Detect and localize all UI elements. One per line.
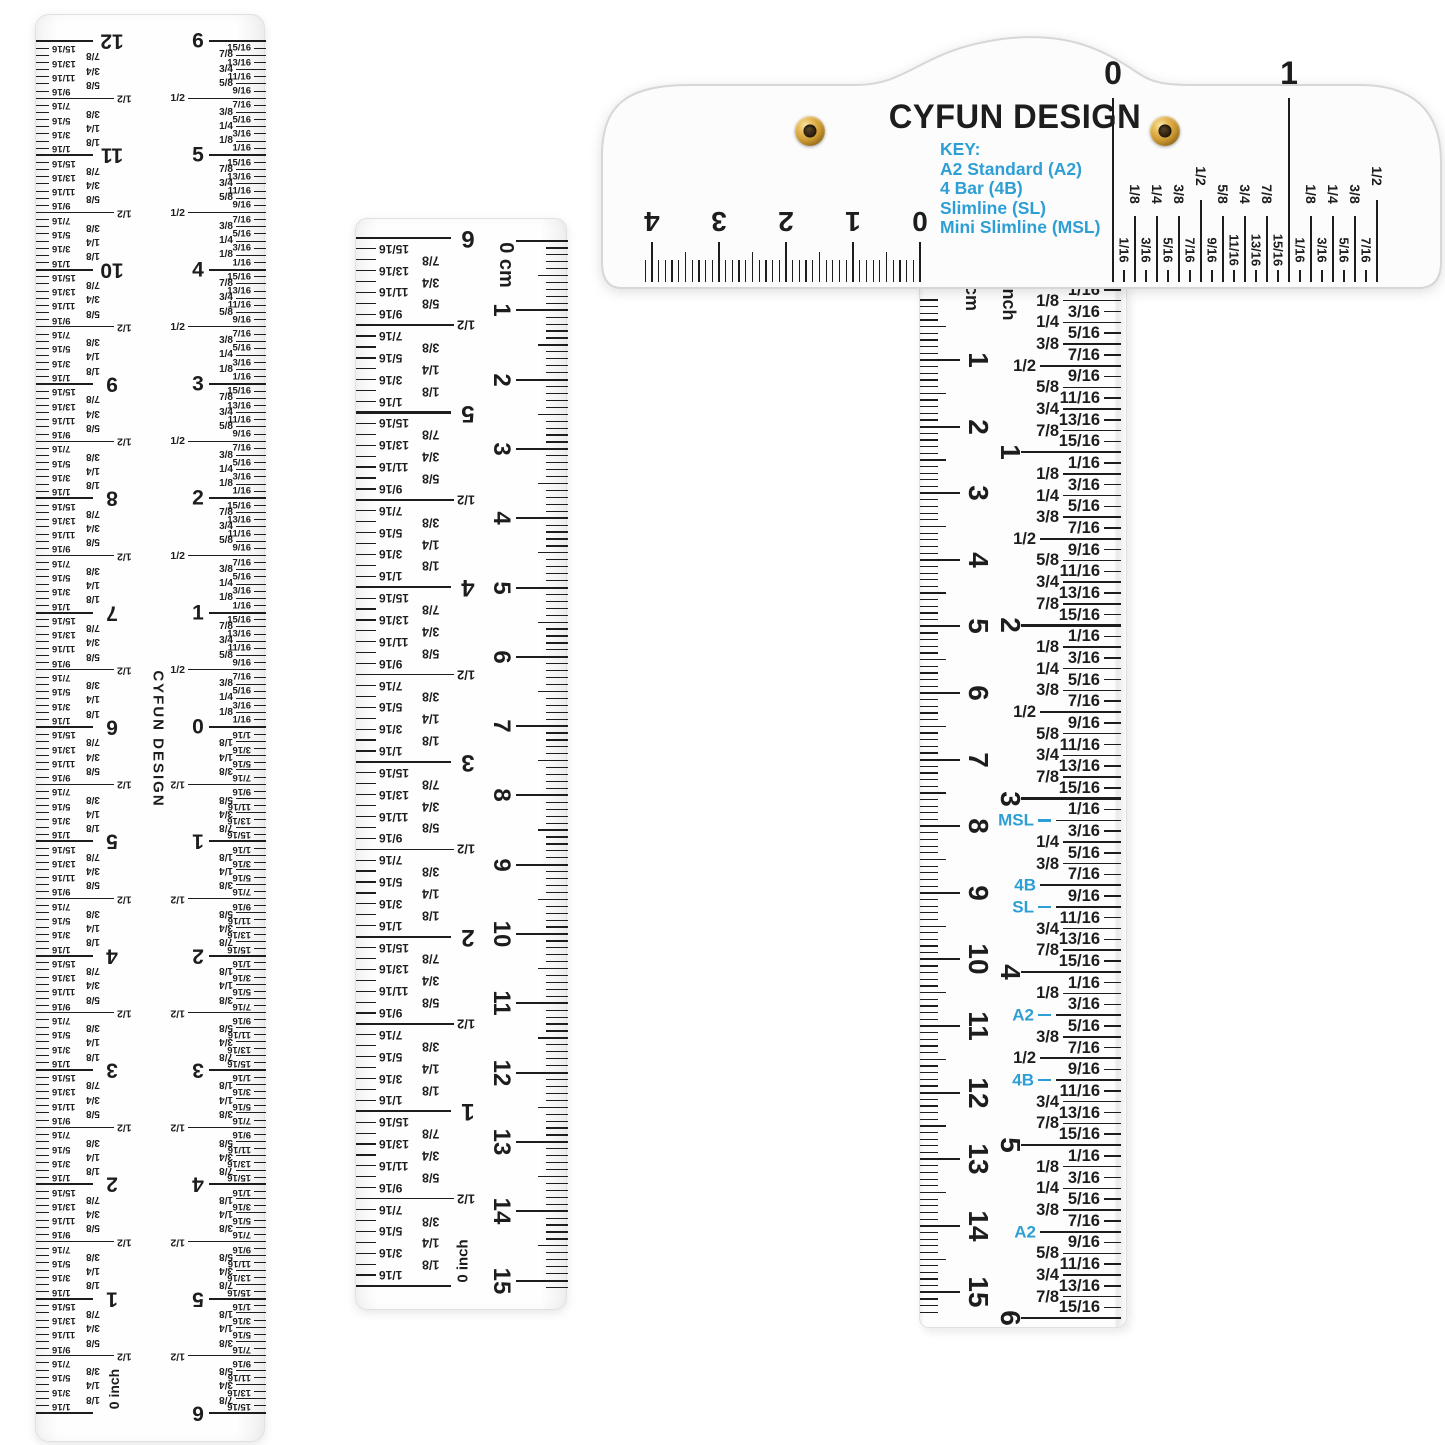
tick-mark: [546, 261, 568, 262]
tick-mark: [1063, 1209, 1121, 1211]
tick-mark: [254, 62, 266, 63]
tick-mark: [254, 233, 266, 234]
half-label: 1/2: [170, 93, 185, 104]
tick-mark: [36, 1312, 49, 1313]
cm-number: 13: [489, 1129, 513, 1156]
eighth-label: 1/4: [86, 579, 100, 589]
tick-mark: [36, 1177, 49, 1178]
tick-mark: [356, 270, 376, 271]
tick-mark: [254, 348, 266, 349]
tick-mark: [254, 1191, 266, 1192]
tick-mark: [879, 260, 880, 282]
tick-mark: [236, 927, 266, 928]
tick-mark: [920, 546, 938, 547]
eighth-label: 5/8: [1216, 184, 1230, 203]
eighth-label: 3/4: [1036, 1093, 1059, 1110]
tick-mark: [1244, 216, 1246, 282]
sixteenth-label: 9/16: [52, 1230, 71, 1240]
beam-cm-number: 2: [964, 419, 992, 435]
tick-mark: [1104, 679, 1121, 681]
tick-mark: [236, 869, 266, 870]
tick-mark: [254, 448, 266, 449]
tick-mark: [920, 1225, 960, 1227]
tick-mark: [516, 794, 568, 796]
inch-number: 8: [106, 488, 118, 509]
tick-mark: [1266, 216, 1268, 282]
tick-mark: [920, 958, 960, 960]
eighth-label: 5/8: [219, 1022, 233, 1032]
eighth-label: 1/4: [86, 465, 100, 475]
tick-mark: [1063, 1036, 1121, 1038]
sixteenth-label: 9/16: [379, 1007, 402, 1019]
tick-mark: [1233, 270, 1234, 282]
sixteenth-label: 13/16: [379, 265, 409, 277]
tick-mark: [36, 341, 49, 342]
beam-inch-number: 3: [996, 791, 1024, 807]
tick-mark: [236, 712, 266, 713]
sixteenth-label: 9/16: [52, 315, 71, 325]
sixteenth-label: 9/16: [1068, 1234, 1100, 1251]
sixteenth-label: 7/16: [52, 787, 71, 797]
tick-mark: [920, 1092, 960, 1094]
tick-mark: [356, 390, 376, 391]
tick-mark: [546, 1197, 568, 1198]
sixteenth-label: 13/16: [52, 629, 76, 639]
center-scale-number: 2: [192, 488, 204, 509]
tick-mark: [920, 612, 938, 613]
tick-mark: [356, 281, 376, 282]
eighth-label: 3/4: [1036, 920, 1059, 937]
eighth-label: 3/4: [1238, 184, 1252, 203]
eighth-label: 1/8: [86, 708, 100, 718]
tick-mark: [546, 739, 568, 740]
tick-mark: [920, 859, 946, 860]
tick-mark: [356, 248, 376, 249]
tick-mark: [254, 805, 266, 806]
tick-mark: [839, 260, 840, 282]
tick-mark: [920, 379, 938, 380]
tick-mark: [36, 1412, 93, 1414]
tick-mark: [356, 881, 376, 882]
tick-mark: [920, 672, 938, 673]
sixteenth-label: 11/16: [52, 72, 75, 82]
tick-mark: [920, 1039, 938, 1040]
tick-mark: [920, 1165, 938, 1166]
tick-mark: [356, 1133, 376, 1134]
tick-mark: [209, 1183, 266, 1185]
tick-mark: [36, 734, 49, 735]
half-label: 1/2: [117, 1008, 132, 1019]
tick-mark: [546, 1114, 568, 1115]
tick-mark: [546, 601, 568, 602]
tick-mark: [36, 1134, 49, 1135]
eighth-label: 3/4: [422, 625, 439, 638]
tick-mark: [546, 365, 568, 366]
ruler-6-inch-15-cm: 1234561/161/83/161/45/163/87/161/29/165/…: [355, 218, 567, 1310]
tick-mark: [546, 441, 568, 442]
tick-mark: [538, 829, 568, 830]
tick-mark: [792, 260, 793, 282]
tick-mark: [920, 413, 938, 414]
tick-mark: [1104, 1090, 1121, 1092]
tick-mark: [36, 784, 114, 785]
tick-mark: [36, 219, 49, 220]
tick-mark: [893, 260, 894, 282]
sixteenth-label: 7/16: [52, 1130, 71, 1140]
tick-mark: [538, 968, 568, 969]
tick-mark: [36, 977, 49, 978]
tick-mark: [772, 260, 773, 282]
tick-mark: [920, 1139, 938, 1140]
tick-mark: [920, 732, 938, 733]
tick-mark: [254, 462, 266, 463]
tick-mark: [254, 648, 266, 649]
tick-mark: [188, 441, 266, 442]
eighth-label: 7/8: [1036, 1115, 1059, 1132]
tick-mark: [236, 884, 266, 885]
tick-mark: [36, 291, 49, 292]
sixteenth-label: 1/16: [233, 258, 252, 268]
tick-mark: [920, 979, 938, 980]
tick-mark: [920, 1199, 938, 1200]
tick-mark: [36, 334, 49, 335]
sixteenth-label: 7/16: [233, 1001, 252, 1011]
eighth-label: 1/4: [219, 865, 233, 875]
tick-mark: [36, 576, 49, 577]
tick-mark: [356, 1045, 376, 1046]
tick-mark: [254, 934, 266, 935]
tick-mark: [236, 1327, 266, 1328]
half-label: 1/2: [117, 893, 132, 904]
sixteenth-label: 5/16: [52, 1258, 71, 1268]
tick-mark: [254, 419, 266, 420]
tick-mark: [236, 83, 266, 84]
tick-mark: [1104, 1220, 1121, 1222]
eighth-label: 5/8: [86, 651, 100, 661]
tick-mark: [254, 1120, 266, 1121]
sixteenth-label: 7/16: [52, 101, 71, 111]
tick-mark: [36, 1334, 49, 1335]
tick-mark: [920, 712, 938, 713]
center-scale-number: 4: [192, 259, 204, 280]
tick-mark: [920, 299, 938, 300]
tick-mark: [254, 1048, 266, 1049]
sixteenth-label: 5/16: [233, 1215, 252, 1225]
eighth-label: 3/4: [86, 408, 100, 418]
tick-mark: [546, 712, 568, 713]
tick-mark: [546, 351, 568, 352]
half-label: 1/2: [170, 1008, 185, 1019]
tick-mark: [236, 698, 266, 699]
sixteenth-label: 11/16: [1060, 909, 1100, 926]
tick-mark: [236, 798, 266, 799]
inch-number: 9: [106, 374, 118, 395]
tick-mark: [920, 779, 938, 780]
tick-mark: [516, 1280, 568, 1282]
tick-mark: [356, 674, 454, 676]
tick-mark: [920, 686, 938, 687]
tick-mark: [718, 242, 720, 282]
tick-mark: [356, 1100, 376, 1101]
tick-mark: [36, 591, 49, 592]
tick-mark: [36, 133, 49, 134]
tick-mark: [1156, 216, 1158, 282]
tick-mark: [1104, 1069, 1121, 1071]
tick-mark: [236, 755, 266, 756]
tick-mark: [546, 788, 568, 789]
eighth-label: 1/8: [1304, 184, 1318, 203]
eighth-label: 5/8: [422, 996, 439, 1009]
tick-mark: [236, 541, 266, 542]
sixteenth-label: 11/16: [379, 461, 408, 473]
sixteenth-label: 9/16: [52, 201, 71, 211]
eighth-label: 3/8: [219, 1337, 233, 1347]
tick-mark: [546, 372, 568, 373]
sixteenth-label: 3/16: [1068, 996, 1100, 1013]
sixteenth-label: 9/16: [233, 429, 252, 439]
tick-mark: [920, 306, 938, 307]
tick-mark: [920, 1219, 938, 1220]
tick-mark: [920, 1158, 960, 1160]
sixteenth-label: 3/16: [379, 898, 402, 910]
eighth-label: 5/8: [422, 821, 439, 834]
eighth-label: 1/8: [422, 909, 439, 922]
tick-mark: [920, 846, 938, 847]
tick-mark: [920, 1152, 938, 1153]
tick-mark: [36, 426, 49, 427]
sixteenth-label: 9/16: [233, 201, 252, 211]
tick-mark: [356, 925, 376, 926]
sixteenth-label: 11/16: [1060, 1256, 1100, 1273]
tick-mark: [356, 1165, 376, 1166]
tick-mark: [36, 1405, 49, 1406]
tick-mark: [36, 1241, 114, 1242]
tick-mark: [920, 1085, 938, 1086]
tick-mark: [698, 260, 699, 282]
tick-mark: [920, 573, 938, 574]
sixteenth-label: 3/16: [52, 701, 71, 711]
eighth-label: 1/4: [219, 693, 233, 703]
sixteenth-label: 5/16: [233, 872, 252, 882]
sixteenth-label: 15/16: [379, 417, 409, 429]
eighth-label: 1/8: [86, 593, 100, 603]
tick-mark: [1038, 1079, 1051, 1082]
tick-mark: [356, 1220, 376, 1221]
tick-mark: [236, 169, 266, 170]
tick-mark: [1189, 270, 1190, 282]
eighth-label: 3/8: [219, 336, 233, 346]
tick-mark: [1063, 776, 1121, 778]
sixteenth-label: 7/16: [52, 1358, 71, 1368]
sixteenth-label: 3/16: [379, 548, 402, 560]
tick-mark: [920, 792, 946, 793]
sixteenth-label: 9/16: [52, 1001, 71, 1011]
tick-mark: [254, 205, 266, 206]
tick-mark: [692, 260, 693, 282]
tick-mark: [538, 552, 568, 553]
sixteenth-label: 13/16: [379, 614, 409, 626]
eighth-label: 3/8: [219, 1222, 233, 1232]
tick-mark: [546, 538, 568, 539]
tick-mark: [356, 608, 376, 609]
tick-mark: [920, 786, 938, 787]
tick-mark: [236, 1055, 266, 1056]
cm-number: 14: [489, 1198, 513, 1225]
eighth-label: 1/4: [86, 1036, 100, 1046]
tick-mark: [36, 233, 49, 234]
tick-mark: [1255, 270, 1256, 282]
inch-number: 6: [461, 226, 474, 250]
eighth-label: 1/8: [86, 136, 100, 146]
center-scale-number: 4: [192, 1174, 204, 1195]
sixteenth-label: 7/16: [379, 505, 402, 517]
half-label: 1/2: [1013, 531, 1036, 548]
tick-mark: [920, 1052, 938, 1053]
tick-mark: [254, 291, 266, 292]
tick-mark: [546, 254, 568, 255]
tick-mark: [546, 296, 568, 297]
card-size-mark: SL: [1012, 898, 1034, 915]
sixteenth-label: 15/16: [52, 1072, 76, 1082]
tick-mark: [859, 260, 860, 282]
tick-mark: [546, 497, 568, 498]
eighth-label: 3/8: [422, 690, 439, 703]
tick-mark: [546, 330, 568, 331]
tick-mark: [920, 972, 938, 973]
tick-mark: [920, 599, 938, 600]
tick-mark: [254, 834, 266, 835]
tick-mark: [920, 999, 938, 1000]
tick-mark: [356, 663, 376, 664]
tick-mark: [1104, 722, 1121, 724]
tick-mark: [36, 969, 49, 970]
tick-mark: [920, 932, 938, 933]
eighth-label: 5/8: [1036, 379, 1059, 396]
tick-mark: [920, 926, 946, 927]
eighth-label: 7/8: [1260, 184, 1274, 203]
tick-mark: [920, 639, 938, 640]
tick-mark: [546, 1231, 568, 1232]
sixteenth-label: 9/16: [1206, 237, 1219, 262]
tick-mark: [254, 919, 266, 920]
sixteenth-label: 5/16: [379, 527, 402, 539]
eighth-label: 1/4: [219, 1208, 233, 1218]
tick-mark: [236, 1212, 266, 1213]
tick-mark: [254, 334, 266, 335]
tick-mark: [546, 462, 568, 463]
sixteenth-label: 15/16: [227, 272, 251, 282]
tick-mark: [920, 1112, 938, 1113]
tick-mark: [254, 362, 266, 363]
tick-mark: [36, 712, 49, 713]
tick-mark: [209, 269, 266, 271]
eighth-label: 3/4: [1036, 1267, 1059, 1284]
eighth-label: 3/4: [86, 1208, 100, 1218]
tick-mark: [516, 1002, 568, 1004]
tick-mark: [36, 1220, 49, 1221]
sixteenth-label: 13/16: [1250, 234, 1263, 267]
tick-mark: [645, 260, 646, 282]
sixteenth-label: 1/16: [233, 486, 252, 496]
tick-mark: [36, 812, 49, 813]
tick-mark: [356, 1285, 451, 1287]
tick-mark: [920, 886, 938, 887]
sixteenth-label: 5/16: [52, 915, 71, 925]
sixteenth-label: 1/16: [233, 844, 252, 854]
key-item-mini-slimline: Mini Slimline (MSL): [940, 218, 1100, 238]
tick-mark: [36, 1077, 49, 1078]
tick-mark: [236, 512, 266, 513]
tick-mark: [36, 376, 49, 377]
tick-mark: [254, 819, 266, 820]
inch-number: 2: [461, 925, 474, 949]
tick-mark: [36, 162, 49, 163]
tick-mark: [920, 1179, 938, 1180]
sixteenth-label: 13/16: [52, 1087, 76, 1097]
tick-mark: [920, 386, 938, 387]
tick-mark: [356, 521, 376, 522]
tick-mark: [36, 1305, 49, 1306]
sixteenth-label: 15/16: [52, 158, 76, 168]
tick-mark: [538, 622, 568, 623]
tick-mark: [254, 1148, 266, 1149]
eighth-label: 5/8: [86, 79, 100, 89]
sixteenth-label: 1/16: [233, 372, 252, 382]
sixteenth-label: 3/16: [233, 244, 252, 254]
eighth-label: 3/8: [1172, 184, 1186, 203]
sixteenth-label: 15/16: [379, 767, 409, 779]
tick-mark: [356, 1067, 376, 1068]
tick-mark: [36, 840, 93, 842]
tick-mark: [36, 141, 49, 142]
sixteenth-label: 3/16: [233, 358, 252, 368]
sixteenth-label: 3/16: [1068, 650, 1100, 667]
tick-mark: [913, 260, 914, 282]
sixteenth-label: 13/16: [1059, 585, 1100, 602]
tick-mark: [546, 580, 568, 581]
tick-mark: [254, 991, 266, 992]
tick-mark: [254, 762, 266, 763]
sixteenth-label: 5/16: [52, 344, 71, 354]
tick-mark: [920, 1259, 946, 1260]
tick-mark: [36, 1191, 49, 1192]
eighth-label: 3/8: [86, 336, 100, 346]
cm-number: 10: [489, 921, 513, 948]
tick-mark: [254, 977, 266, 978]
sixteenth-label: 5/16: [52, 1030, 71, 1040]
tick-mark: [236, 69, 266, 70]
tick-mark: [873, 260, 874, 282]
eighth-label: 1/8: [1036, 985, 1059, 1002]
tick-mark: [546, 996, 568, 997]
tick-mark: [920, 1298, 938, 1299]
tick-mark: [538, 691, 568, 692]
tick-mark: [254, 576, 266, 577]
eighth-label: 7/8: [86, 1194, 100, 1204]
sixteenth-label: 5/16: [52, 801, 71, 811]
tick-mark: [920, 1252, 938, 1253]
eyelet-right-hole: [1159, 125, 1172, 138]
tick-mark: [1104, 765, 1121, 767]
eighth-label: 3/4: [1036, 747, 1059, 764]
tick-mark: [516, 656, 568, 658]
sixteenth-label: 3/16: [379, 374, 402, 386]
sixteenth-label: 15/16: [52, 43, 76, 53]
tsquare-beam: cminch1234567891011121314151234561/161/8…: [919, 286, 1127, 1328]
tick-mark: [254, 748, 266, 749]
sixteenth-label: 15/16: [379, 592, 409, 604]
eighth-label: 3/8: [422, 1040, 439, 1053]
